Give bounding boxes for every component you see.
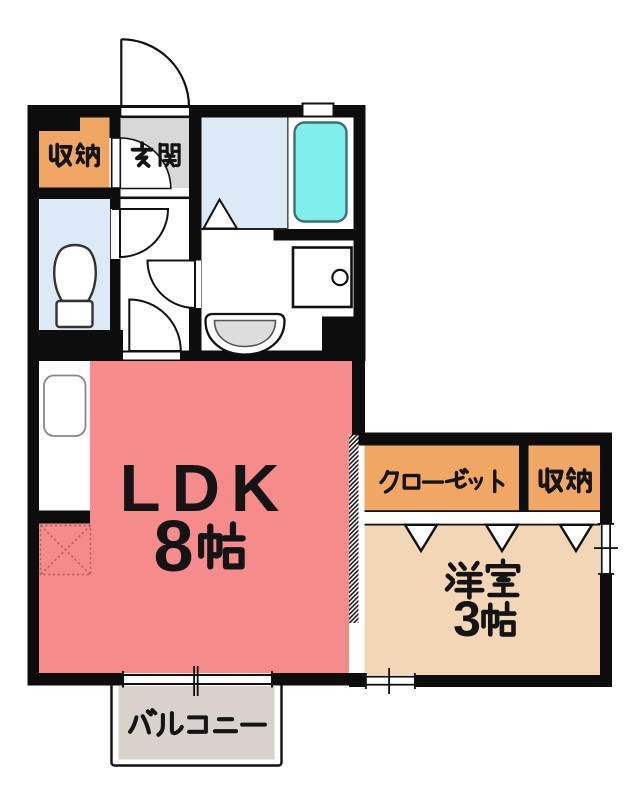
svg-text:3: 3 bbox=[453, 591, 481, 647]
svg-text:8: 8 bbox=[153, 507, 193, 587]
svg-text:LDK: LDK bbox=[120, 451, 291, 526]
